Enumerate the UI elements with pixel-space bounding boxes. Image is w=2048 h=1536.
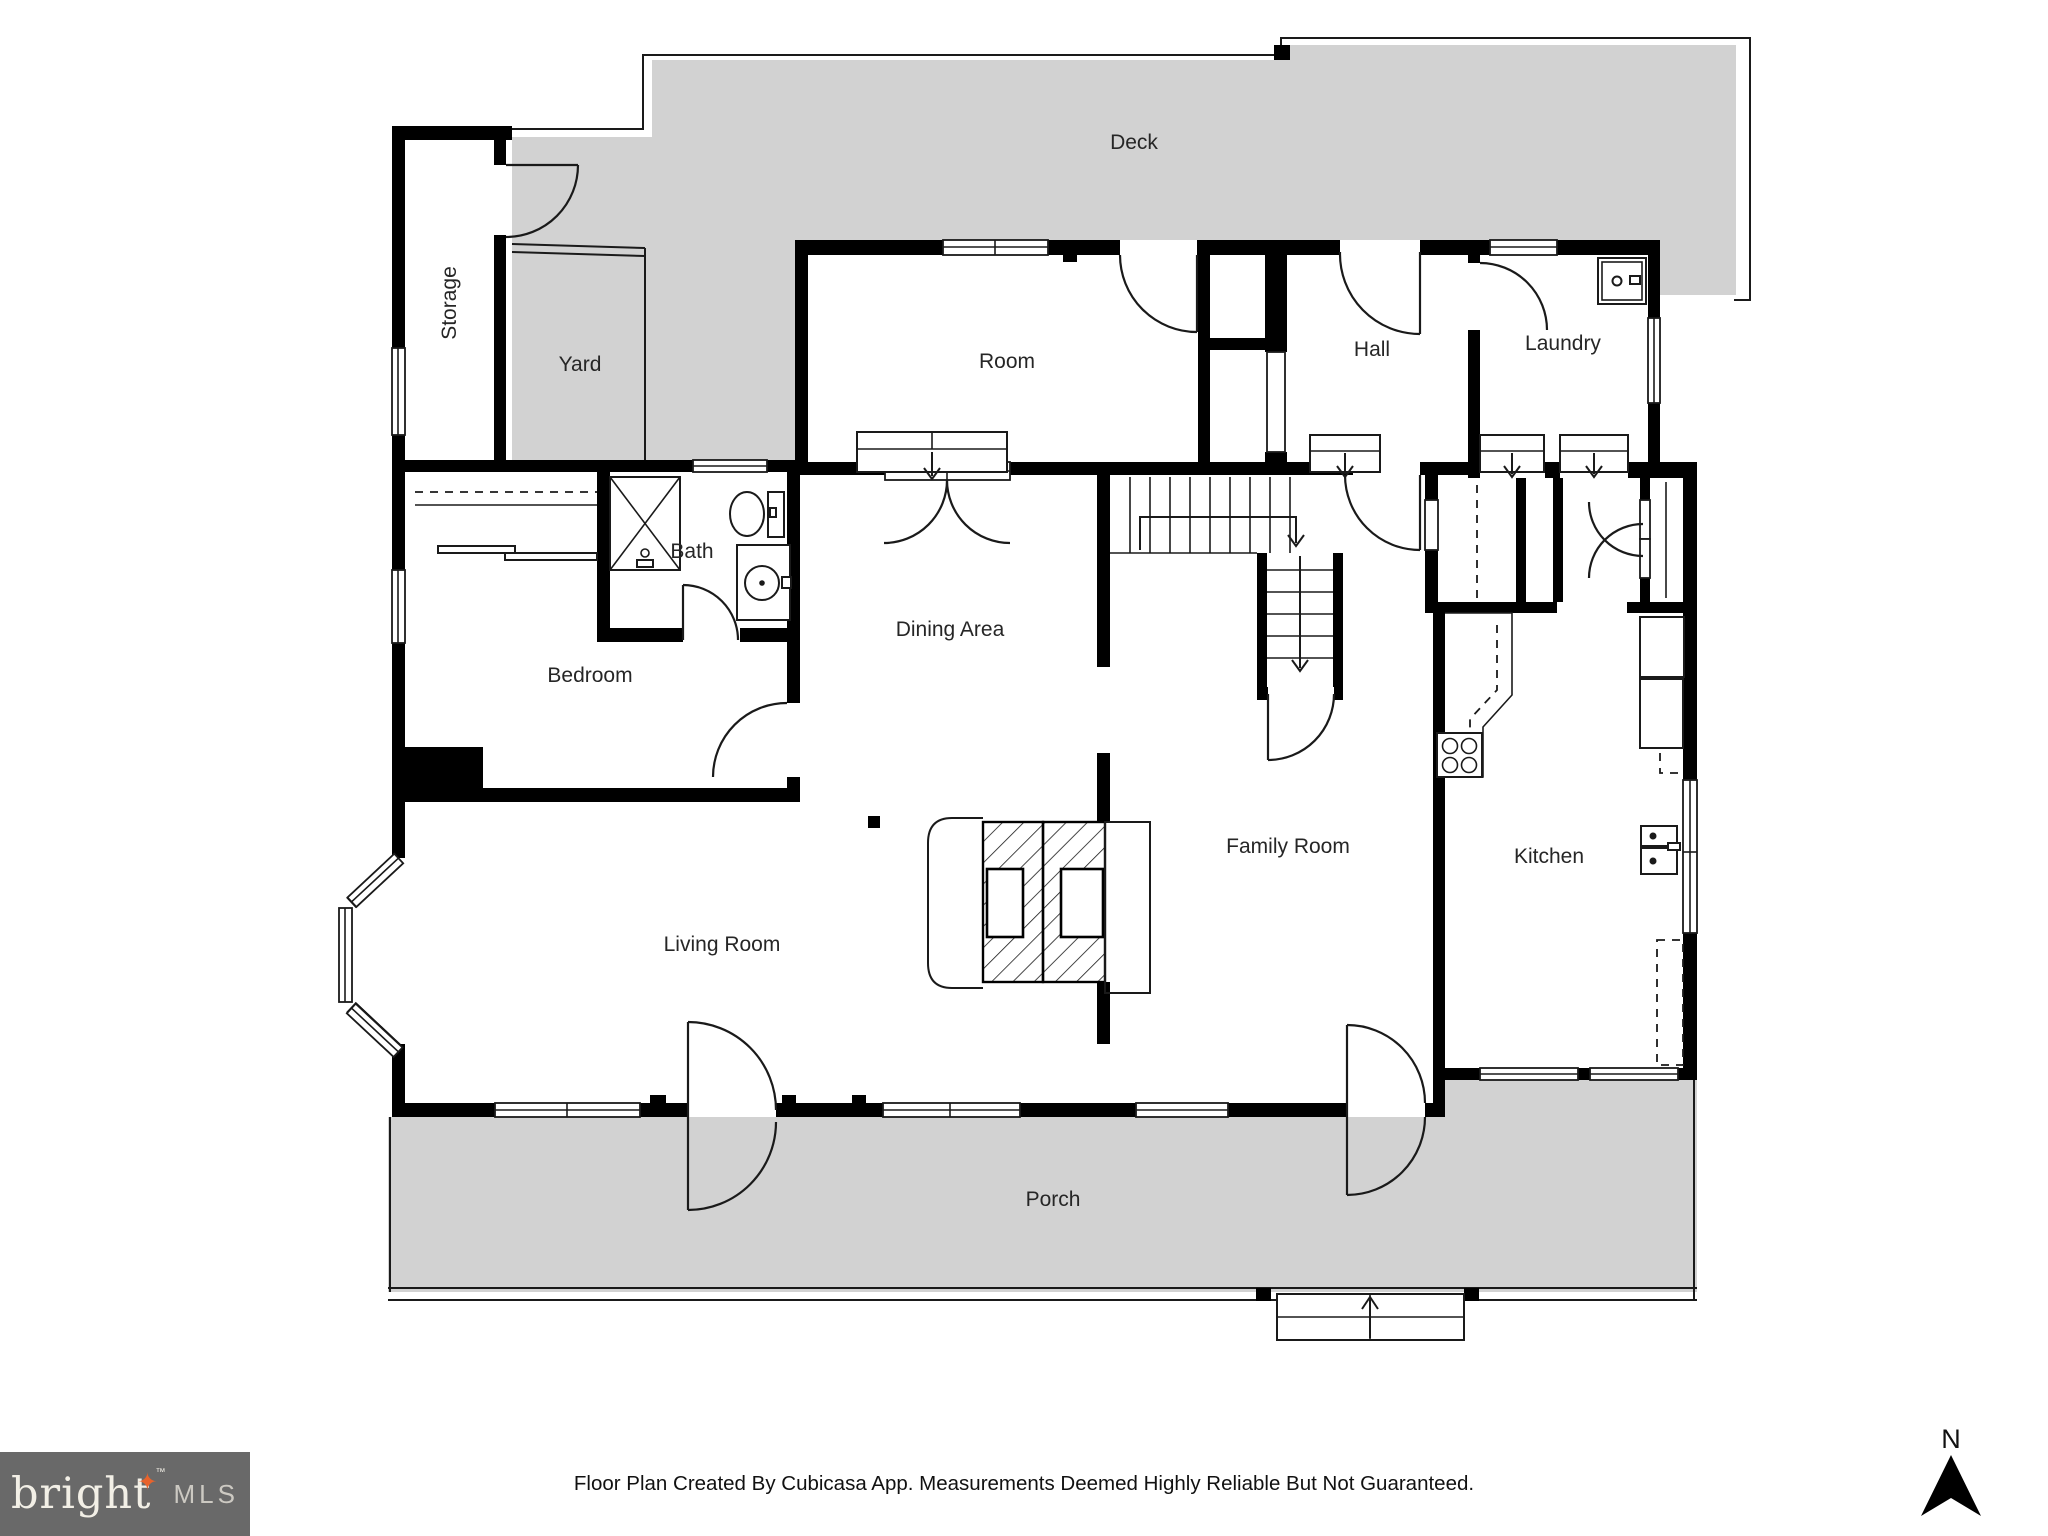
window	[1683, 780, 1697, 933]
dining-french-doors	[884, 462, 1010, 543]
room-label-dining-area: Dining Area	[896, 618, 1005, 641]
logo-star-icon: ✦	[137, 1468, 157, 1497]
hall-family-door	[1345, 475, 1420, 550]
window	[943, 240, 1048, 255]
stove	[1437, 733, 1482, 777]
laundry-door	[1480, 263, 1547, 330]
window	[392, 570, 405, 643]
room-deck-door	[1120, 255, 1197, 332]
north-compass: N	[1921, 1424, 1981, 1516]
stairs-door	[1268, 694, 1334, 760]
north-label: N	[1941, 1424, 1961, 1454]
room-label-room: Room	[979, 350, 1035, 373]
porch-post	[1464, 1288, 1479, 1301]
floor-plan-drawing: Deck Storage Yard Room Hall Laundry Bath…	[0, 0, 2048, 1536]
bright-mls-logo: bright✦™ MLS	[0, 1452, 250, 1536]
window	[1480, 1068, 1578, 1080]
laundry-steps-b	[1560, 435, 1628, 477]
washing-machine	[1598, 258, 1646, 304]
window	[1490, 240, 1557, 255]
room-steps	[857, 432, 1007, 479]
room-label-porch: Porch	[1026, 1188, 1081, 1211]
window	[1136, 1103, 1228, 1117]
logo-suffix-text: MLS	[173, 1479, 238, 1510]
laundry-steps-a	[1480, 435, 1544, 477]
porch-steps	[1277, 1294, 1464, 1340]
disclaimer-text: Floor Plan Created By Cubicasa App. Meas…	[0, 1472, 2048, 1496]
room-label-deck: Deck	[1110, 131, 1158, 154]
kitchen-counter	[1437, 613, 1684, 1065]
bay-window	[339, 908, 352, 1002]
room-label-storage: Storage	[438, 266, 461, 340]
closet-door-strip	[1267, 352, 1285, 452]
window	[883, 1103, 1020, 1117]
dishwasher	[1657, 940, 1683, 1065]
bay-window	[348, 854, 404, 907]
toilet	[730, 492, 784, 537]
room-label-yard: Yard	[559, 353, 602, 376]
bedroom-door	[713, 703, 787, 777]
hall-deck-door	[1340, 252, 1420, 334]
window	[1648, 318, 1660, 403]
room-label-bath: Bath	[670, 540, 713, 563]
room-label-living-room: Living Room	[664, 933, 781, 956]
staircase	[1110, 477, 1333, 671]
room-label-hall: Hall	[1354, 338, 1390, 361]
floor-plan-page: Deck Storage Yard Room Hall Laundry Bath…	[0, 0, 2048, 1536]
logo-brand-text: bright	[11, 1469, 151, 1519]
room-label-bedroom: Bedroom	[547, 664, 632, 687]
support-post	[868, 816, 880, 828]
deck-area	[512, 45, 1736, 472]
outdoor-areas	[388, 38, 1750, 1340]
porch-post	[1256, 1288, 1271, 1301]
fireplace	[928, 818, 1150, 993]
hall-steps	[1310, 435, 1380, 477]
chimney-mass	[392, 747, 483, 802]
kitchen-sink	[1641, 826, 1680, 874]
window	[392, 348, 405, 435]
logo-tm: ™	[155, 1467, 165, 1478]
bath-sink	[737, 545, 791, 620]
bay-window	[347, 1004, 403, 1057]
room-label-family-room: Family Room	[1226, 835, 1350, 858]
window	[495, 1103, 640, 1117]
window	[1590, 1068, 1678, 1080]
room-label-laundry: Laundry	[1525, 332, 1601, 355]
deck-post	[1274, 45, 1290, 60]
bedroom-closet	[415, 492, 597, 560]
window	[693, 460, 767, 472]
room-label-kitchen: Kitchen	[1514, 845, 1584, 868]
